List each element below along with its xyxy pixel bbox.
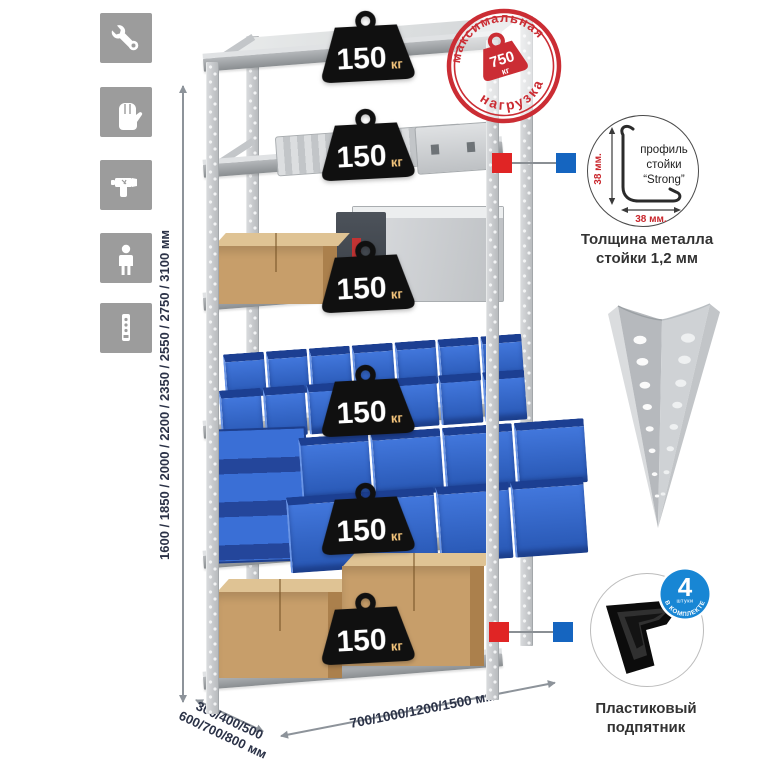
- svg-text:150: 150: [336, 139, 388, 175]
- profile-caption: Толщина металла стойки 1,2 мм: [567, 231, 727, 269]
- svg-text:38 мм.: 38 мм.: [593, 153, 604, 185]
- rack-post-front-right: [486, 40, 499, 700]
- callout-marker-red-top: [492, 153, 512, 173]
- svg-text:штуки: штуки: [676, 599, 693, 605]
- rack-post-front-left: [206, 62, 219, 714]
- svg-text:150: 150: [336, 395, 388, 431]
- svg-text:кг: кг: [390, 410, 403, 426]
- shelf-load-weight-4: 150кг: [306, 361, 428, 445]
- shelf-load-weight-6: 150кг: [306, 589, 428, 673]
- svg-text:кг: кг: [390, 56, 403, 72]
- svg-text:150: 150: [336, 513, 388, 549]
- svg-text:4: 4: [678, 572, 693, 602]
- callout-line-top: [512, 162, 556, 164]
- svg-text:кг: кг: [390, 528, 403, 544]
- profile-caption-line2: стойки 1,2 мм: [567, 250, 727, 269]
- svg-text:150: 150: [336, 41, 388, 77]
- svg-text:150: 150: [336, 623, 388, 659]
- product-infographic: 1600 / 1850 / 2000 / 2200 / 2350 / 2550 …: [0, 0, 765, 765]
- profile-detail-circle: 38 мм. 38 мм. профиль стойки “Strong”: [587, 115, 699, 227]
- svg-text:кг: кг: [390, 286, 403, 302]
- shelf-load-weight-5: 150кг: [306, 479, 428, 563]
- shelf-load-weight-2: 150кг: [306, 105, 428, 189]
- callout-line-bottom: [509, 631, 553, 633]
- angle-post-image: [598, 296, 734, 536]
- storage-bin: [435, 482, 513, 563]
- quantity-badge: 4 штуки в комплекте: [657, 566, 713, 622]
- storage-bin: [510, 477, 588, 558]
- storage-bin: [438, 372, 483, 425]
- svg-text:150: 150: [336, 271, 388, 307]
- svg-text:профиль: профиль: [640, 144, 688, 156]
- svg-text:стойки: стойки: [646, 159, 681, 171]
- shelf-load-weight-3: 150кг: [306, 237, 428, 321]
- svg-text:38 мм.: 38 мм.: [635, 214, 667, 225]
- foot-caption-line1: Пластиковый: [574, 700, 718, 719]
- callout-marker-red-bottom: [489, 622, 509, 642]
- foot-caption: Пластиковый подпятник: [574, 700, 718, 738]
- svg-text:“Strong”: “Strong”: [643, 174, 685, 186]
- callout-marker-blue-bottom: [553, 622, 573, 642]
- svg-text:кг: кг: [390, 638, 403, 654]
- callout-marker-blue-top: [556, 153, 576, 173]
- foot-caption-line2: подпятник: [574, 719, 718, 738]
- shelf-load-weight-1: 150кг: [306, 7, 428, 91]
- svg-text:кг: кг: [390, 154, 403, 170]
- profile-caption-line1: Толщина металла: [567, 231, 727, 250]
- profile-cross-section-drawing: 38 мм. 38 мм. профиль стойки “Strong”: [588, 116, 698, 226]
